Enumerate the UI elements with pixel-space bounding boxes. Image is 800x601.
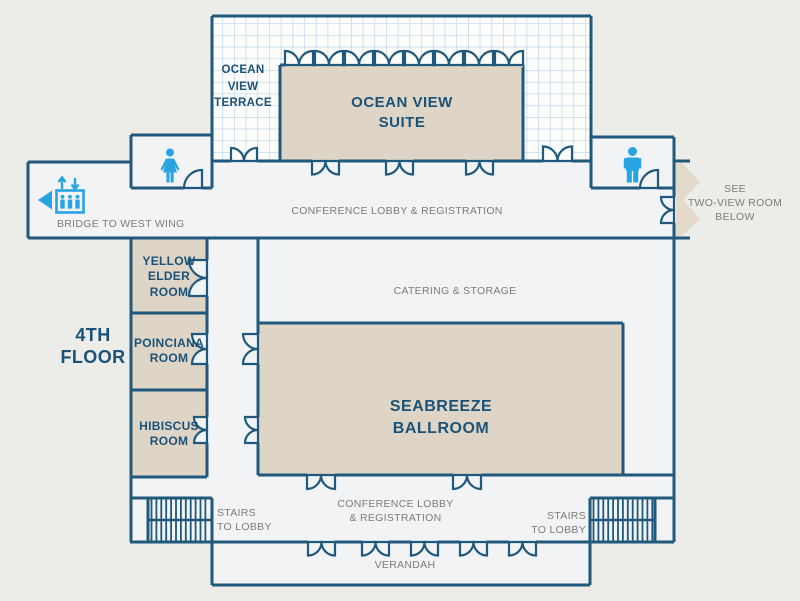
- floor-plan: 4TH FLOOR OCEAN VIEW TERRACE OCEAN VIEW …: [0, 0, 800, 601]
- catering-label: CATERING & STORAGE: [350, 284, 560, 298]
- floor-title: 4TH FLOOR: [46, 325, 140, 368]
- seabreeze-ballroom-label: SEABREEZE BALLROOM: [281, 396, 601, 439]
- lobby-bottom-label: CONFERENCE LOBBY & REGISTRATION: [308, 497, 483, 525]
- corridor-floor: [212, 160, 591, 238]
- bridge-label: BRIDGE TO WEST WING: [57, 217, 207, 231]
- stairs-right-label: STAIRS TO LOBBY: [508, 509, 586, 537]
- yellow-elder-room-label: YELLOW ELDER ROOM: [133, 254, 205, 300]
- ocean-view-suite-label: OCEAN VIEW SUITE: [282, 93, 522, 134]
- verandah-label: VERANDAH: [310, 558, 500, 572]
- corridor-floor: [591, 188, 674, 238]
- two-view-note: SEE TWO-VIEW ROOM BELOW: [686, 182, 784, 225]
- hibiscus-room-label: HIBISCUS ROOM: [133, 419, 205, 450]
- poinciana-room-label: POINCIANA ROOM: [133, 336, 205, 367]
- lobby-top-label: CONFERENCE LOBBY & REGISTRATION: [227, 204, 567, 218]
- stairs-left-label: STAIRS TO LOBBY: [217, 506, 277, 534]
- terrace-label: OCEAN VIEW TERRACE: [202, 62, 284, 112]
